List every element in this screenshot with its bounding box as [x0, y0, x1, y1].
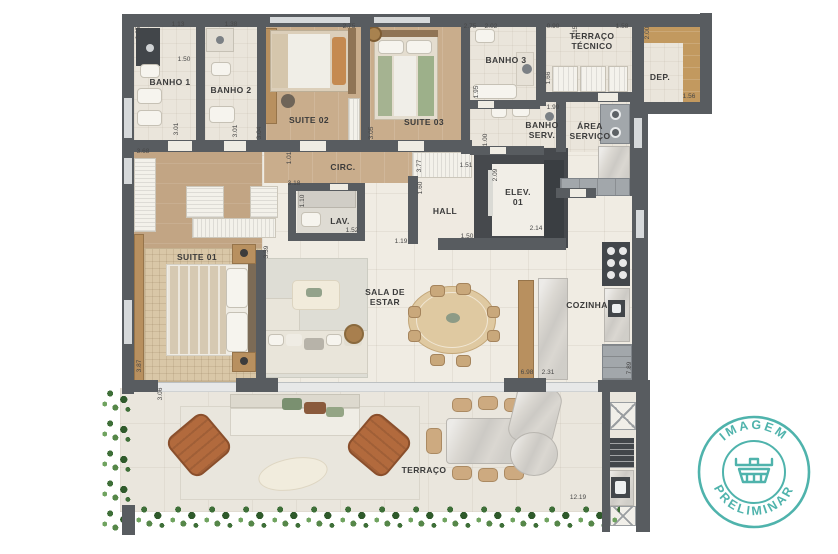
dining-chair	[487, 306, 500, 318]
watermark-inner-circle	[723, 441, 785, 503]
desk-chair-suite02	[281, 94, 295, 108]
bed-suite02-throw	[272, 34, 288, 88]
door-opening	[478, 101, 494, 108]
window	[636, 210, 644, 238]
watermark-text-bottom: PRELIMINAR	[711, 482, 797, 518]
watermark-text-top: IMAGEM	[717, 418, 791, 444]
room-label-cozinha: COZINHA	[566, 300, 608, 310]
burner-icon	[619, 271, 627, 279]
rug-suite02	[348, 98, 360, 142]
kitchen-island	[538, 278, 568, 380]
lamp-icon	[240, 249, 248, 257]
dimension-label: 1.66	[546, 72, 553, 85]
dimension-label: 3.01	[174, 123, 181, 136]
shower-head-icon	[216, 36, 224, 44]
sofa-throw	[304, 338, 324, 350]
sink-banho1-a	[137, 88, 162, 104]
burner-icon	[607, 259, 615, 267]
burner-icon	[619, 259, 627, 267]
dimension-label: 1.56	[683, 94, 696, 101]
wall-segment	[196, 24, 205, 146]
kitchen-bar	[518, 280, 534, 380]
outdoor-chair	[426, 428, 442, 454]
dining-chair	[487, 330, 500, 342]
window	[634, 118, 642, 148]
sliding-glass-door	[158, 382, 236, 392]
bed-suite02-duvet	[288, 34, 330, 88]
wall-segment	[461, 14, 470, 154]
door-opening	[300, 141, 326, 151]
sink-banho1-b	[137, 110, 162, 126]
lamp-icon	[240, 357, 248, 365]
sofa-cushion-green	[282, 398, 302, 410]
pillow-suite03-a	[378, 40, 404, 54]
room-label-banho-1: BANHO 1	[149, 77, 190, 87]
sofa-pillow	[286, 334, 302, 346]
wall-segment	[630, 102, 648, 196]
room-label-dep: DEP.	[650, 72, 670, 82]
outdoor-stool	[478, 468, 498, 482]
door-opening	[330, 184, 348, 190]
dining-chair	[430, 354, 445, 366]
ac-unit	[580, 66, 606, 92]
door-opening	[570, 189, 586, 197]
dimension-label: 7.89	[627, 362, 634, 375]
outdoor-sink-basin	[615, 481, 626, 494]
dimension-label: 3.68	[137, 149, 150, 156]
toilet-banho1	[140, 64, 160, 78]
dining-chair	[456, 283, 471, 295]
sliding-glass-door	[546, 382, 598, 392]
room-label-banho-3: BANHO 3	[485, 55, 526, 65]
ac-unit	[552, 66, 578, 92]
wall-segment	[602, 392, 610, 532]
window	[124, 98, 132, 138]
sofa-cushion-sage	[326, 407, 344, 417]
washer-door	[610, 109, 621, 120]
outdoor-table	[446, 418, 518, 464]
pillow-suite01-a	[226, 268, 248, 308]
toilet-lav	[301, 212, 321, 227]
dimension-label: 3.05	[369, 127, 376, 140]
dimension-label: 0.65	[136, 27, 143, 40]
crown-icon	[736, 459, 772, 482]
window	[270, 17, 350, 23]
dining-chair	[430, 285, 445, 297]
dimension-label: 2.75	[343, 24, 356, 31]
dimension-label: 1.60	[418, 182, 425, 195]
sofa-pillow	[326, 334, 342, 346]
kitchen-sink-basin	[612, 304, 621, 313]
room-label-sala-de-estar: SALA DE ESTAR	[365, 287, 405, 307]
dining-chair	[408, 306, 421, 318]
dimension-label: 1.01	[287, 152, 294, 165]
dimension-label: 1.95	[474, 86, 481, 99]
dimension-label: 3.01	[233, 125, 240, 138]
bed-suite03-blanket-right	[418, 56, 434, 116]
ac-unit	[608, 66, 628, 92]
outdoor-stool	[452, 398, 472, 412]
room-label-lav: LAV.	[330, 216, 350, 226]
window	[374, 17, 430, 23]
window	[124, 158, 132, 184]
dining-chair	[408, 330, 421, 342]
room-label-terraco: TERRAÇO	[402, 465, 447, 475]
dimension-label: 2.02	[485, 24, 498, 31]
door-opening	[490, 147, 506, 154]
wall-segment	[700, 13, 712, 114]
svg-text:PRELIMINAR: PRELIMINAR	[711, 482, 797, 518]
pillow-suite01-b	[226, 312, 248, 352]
sliding-glass-door	[278, 382, 504, 392]
room-label-circ: CIRC.	[330, 162, 355, 172]
side-table-round	[344, 324, 364, 344]
burner-icon	[607, 247, 615, 255]
bed-suite02-pillow	[332, 37, 346, 85]
dimension-label: 2.09	[493, 169, 500, 182]
svg-text:IMAGEM: IMAGEM	[717, 418, 791, 444]
wardrobe-left	[134, 158, 156, 232]
wall-segment	[122, 380, 158, 392]
dimension-label: 2.00	[645, 27, 652, 40]
dimension-label: 6.98	[521, 370, 534, 377]
wall-segment	[256, 250, 266, 382]
outdoor-stool	[452, 466, 472, 480]
wall-segment	[636, 380, 650, 532]
dimension-label: 1.50	[178, 57, 191, 64]
room-label-elev-01: ELEV. 01	[505, 187, 531, 207]
wardrobe-closet-a	[186, 186, 224, 218]
dimension-label: 1.19	[395, 239, 408, 246]
dimension-label: 3.87	[137, 360, 144, 373]
preliminary-watermark: IMAGEM PRELIMINAR	[684, 402, 824, 542]
dimension-label: 1.99	[547, 105, 560, 112]
dimension-label: 2.14	[530, 226, 543, 233]
bed-suite01-duvet	[168, 266, 226, 354]
sofa-pillow	[268, 334, 284, 346]
floor-plan: BANHO 1BANHO 2SUITE 02SUITE 03BANHO 3TER…	[0, 0, 838, 554]
dining-chair	[456, 355, 471, 367]
wall-segment	[236, 378, 278, 392]
room-label-hall: HALL	[433, 206, 457, 216]
room-label-banho-serv: BANHO SERV.	[525, 120, 558, 140]
table-decor	[306, 288, 322, 297]
vent-hatch	[610, 402, 636, 430]
grill	[608, 438, 634, 468]
dimension-label: 1.50	[461, 234, 474, 241]
centerpiece	[446, 313, 460, 323]
elevator-machine	[544, 160, 564, 238]
headboard-suite02	[348, 28, 356, 94]
door-opening	[398, 141, 424, 151]
room-label-suite-02: SUITE 02	[289, 115, 329, 125]
dimension-label: 3.18	[288, 181, 301, 188]
dimension-label: 3.04	[257, 127, 264, 140]
door-opening	[224, 141, 246, 151]
door-opening	[598, 93, 618, 101]
wall-segment	[122, 505, 135, 535]
toilet-banho3	[475, 29, 495, 43]
wall-segment	[470, 146, 544, 155]
wall-segment	[438, 238, 566, 250]
dimension-label: 1.15	[573, 26, 580, 39]
shower-head-icon	[522, 64, 532, 74]
dimension-label: 3.39	[264, 246, 271, 259]
counter-lav	[298, 188, 356, 208]
bed-suite03-blanket-left	[378, 56, 392, 116]
bed-suite03-duvet	[394, 56, 416, 116]
wall-segment	[504, 378, 546, 392]
dimension-label: 1.38	[225, 22, 238, 29]
wall-segment	[264, 140, 472, 152]
sofa-cushion-brown	[304, 402, 326, 414]
dimension-label: 1.00	[483, 134, 490, 147]
room-label-suite-03: SUITE 03	[404, 117, 444, 127]
dimension-label: 12.19	[570, 495, 586, 502]
planter-bottom	[134, 502, 620, 532]
dimension-label: 0.90	[547, 24, 560, 31]
washer-door	[610, 127, 621, 138]
dimension-label: 1.10	[300, 195, 307, 208]
dimension-label: 3.06	[158, 388, 165, 401]
shower-head-icon	[146, 44, 154, 52]
burner-icon	[607, 271, 615, 279]
curved-counter-end	[510, 432, 558, 476]
sink-banho2	[209, 106, 235, 123]
dimension-label: 1.52	[346, 228, 359, 235]
burner-icon	[619, 247, 627, 255]
pillow-suite03-b	[406, 40, 432, 54]
room-label-banho-2: BANHO 2	[210, 85, 251, 95]
room-label-suite-01: SUITE 01	[177, 252, 217, 262]
toilet-banho2	[211, 62, 231, 76]
dimension-label: 1.58	[616, 24, 629, 31]
wardrobe-closet-b	[250, 186, 278, 218]
dimension-label: 2.75	[464, 24, 477, 31]
outdoor-stool	[478, 396, 498, 410]
window	[124, 300, 132, 344]
door-opening	[168, 141, 192, 151]
headboard-suite03	[374, 30, 438, 37]
dimension-label: 3.77	[417, 160, 424, 173]
room-label-area-servico: ÁREA SERVIÇO	[570, 121, 611, 141]
dimension-label: 1.51	[460, 163, 473, 170]
dresser-closet	[192, 218, 276, 238]
dimension-label: 2.31	[542, 370, 555, 377]
dimension-label: 1.13	[172, 22, 185, 29]
